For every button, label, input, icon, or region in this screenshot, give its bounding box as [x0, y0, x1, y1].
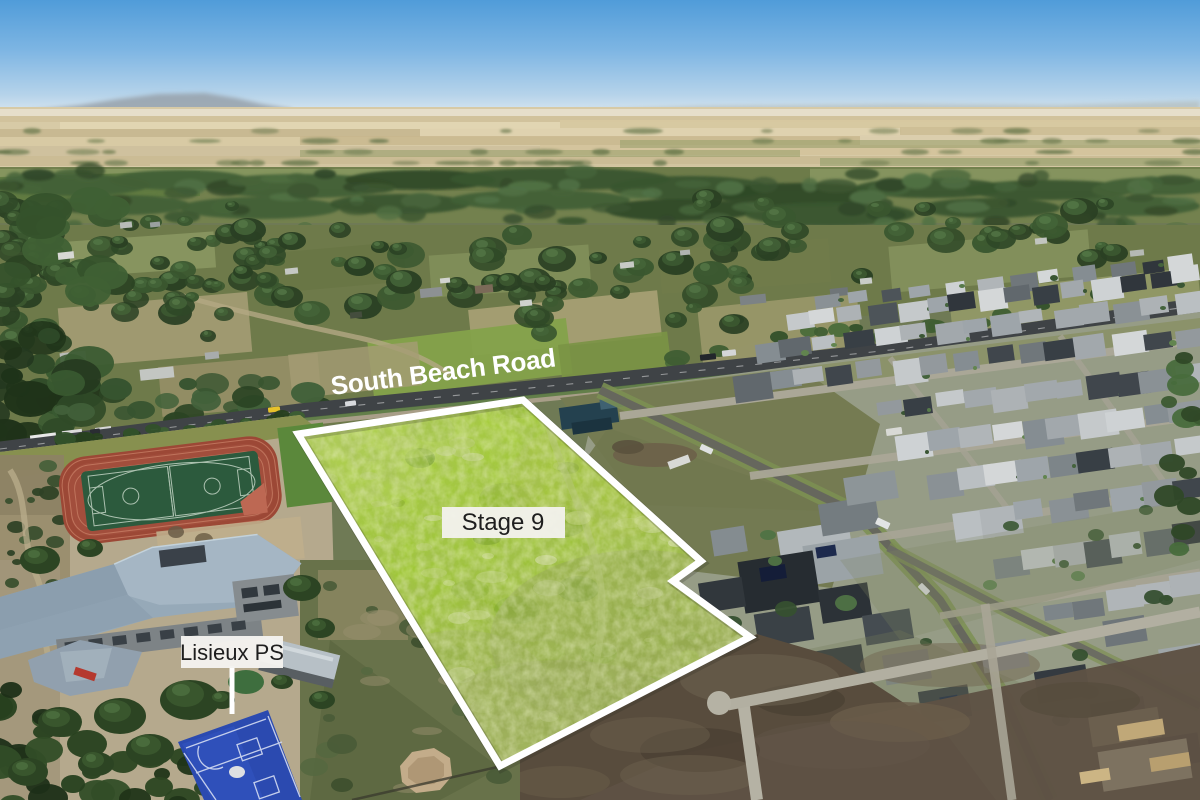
svg-text:Lisieux PS: Lisieux PS [180, 640, 284, 665]
svg-text:Stage 9: Stage 9 [462, 509, 545, 536]
